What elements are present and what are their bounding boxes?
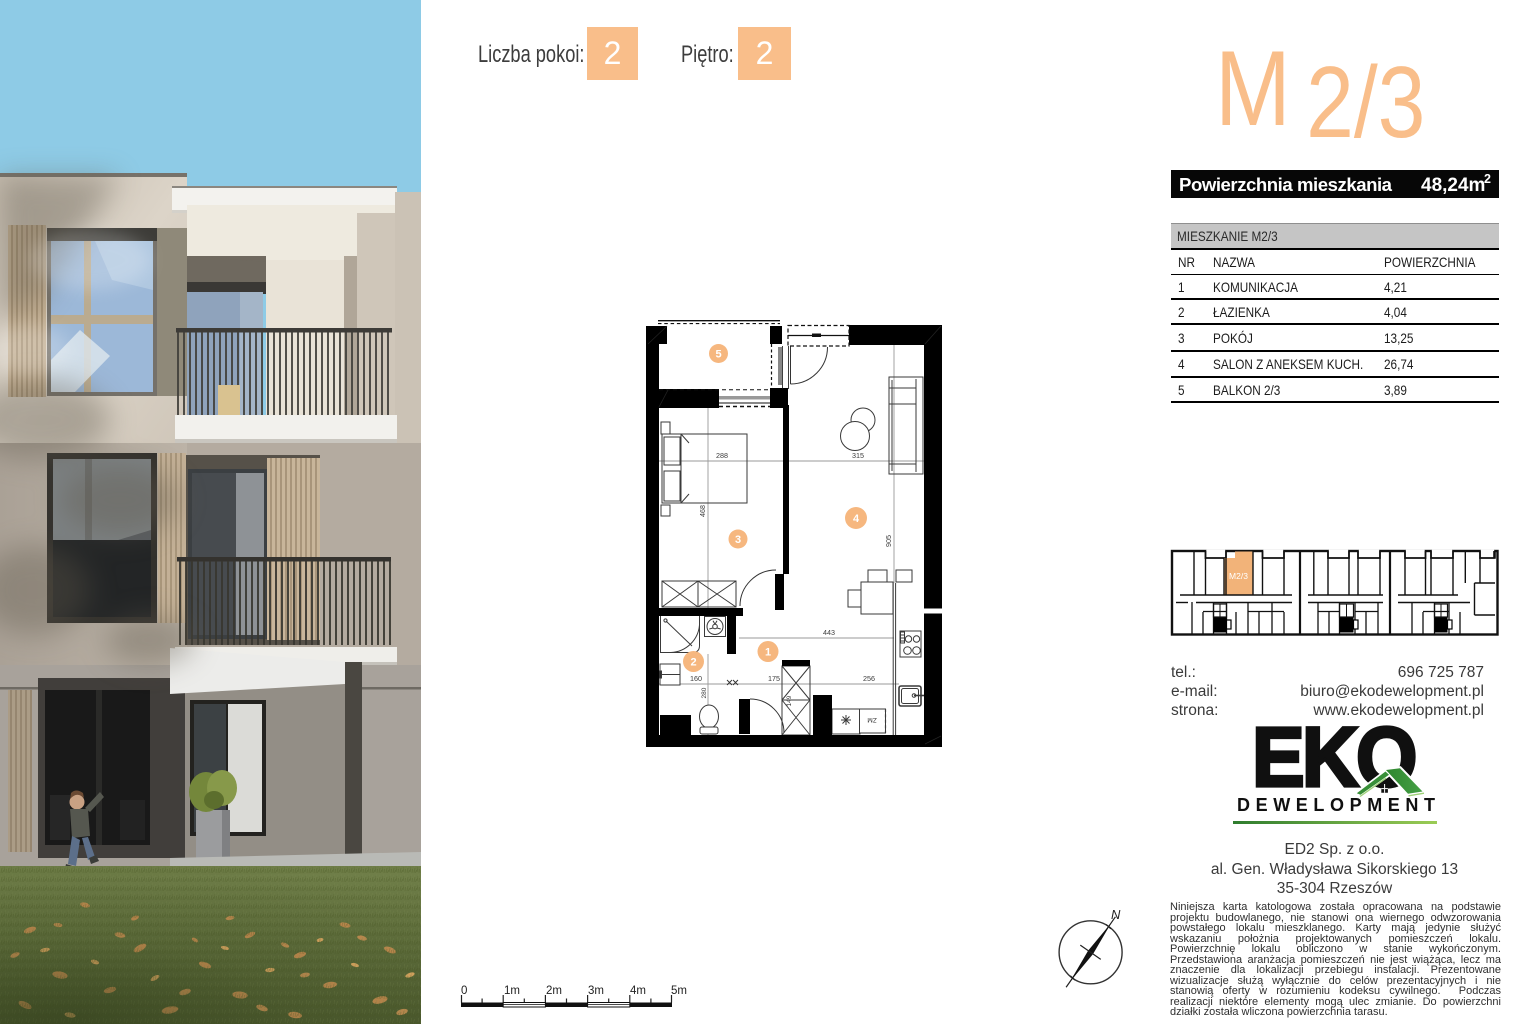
svg-text:256: 256 [863,674,875,683]
svg-text:5m: 5m [671,985,687,997]
svg-text:149: 149 [786,695,793,706]
svg-text:4m: 4m [630,985,646,997]
svg-text:288: 288 [716,451,728,460]
svg-text:468: 468 [698,505,707,517]
svg-text:443: 443 [823,628,835,637]
svg-text:160: 160 [690,674,702,683]
svg-text:Powierzchnia mieszkania: Powierzchnia mieszkania [1179,174,1393,195]
svg-text:1m: 1m [504,985,520,997]
svg-text:5: 5 [715,349,721,361]
svg-text:N: N [1111,907,1121,922]
svg-text:1: 1 [765,647,771,659]
svg-text:280: 280 [701,687,708,698]
svg-text:2m: 2m [546,985,562,997]
svg-text:2: 2 [1484,172,1491,186]
svg-text:4: 4 [853,513,860,525]
svg-text:2: 2 [690,657,696,669]
svg-text:0: 0 [461,985,467,997]
svg-text:M2/3: M2/3 [1229,571,1248,581]
svg-text:3: 3 [735,534,741,546]
svg-text:48,24m: 48,24m [1421,175,1485,196]
svg-text:905: 905 [884,535,893,547]
svg-text:ZM: ZM [867,716,876,723]
svg-text:175: 175 [768,674,780,683]
svg-text:3m: 3m [588,985,604,997]
svg-text:315: 315 [852,451,864,460]
